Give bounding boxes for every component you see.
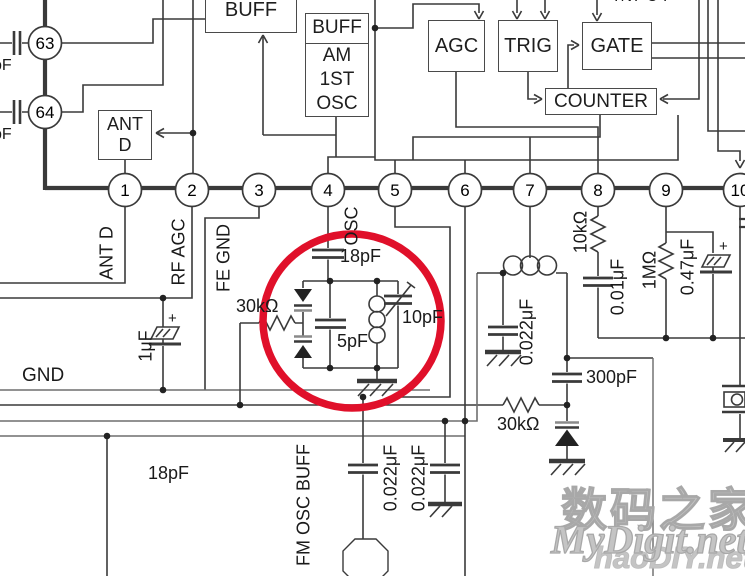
- block-counter-label: COUNTER: [554, 91, 648, 113]
- svg-text:64: 64: [36, 103, 55, 122]
- pin-9: 9: [650, 174, 683, 207]
- osc-cap-value: 18pF: [340, 246, 381, 267]
- pin8-cap-value: 0.01μF: [608, 259, 629, 315]
- block-counter: COUNTER: [545, 88, 657, 115]
- svg-text:2: 2: [187, 181, 196, 200]
- block-trig-label: TRIG: [504, 35, 552, 58]
- block-gate-label: GATE: [591, 35, 644, 58]
- pin-4: 4: [312, 174, 345, 207]
- pin9-res-value: 1MΩ: [640, 251, 661, 289]
- block-ant-label: ANT: [107, 114, 143, 135]
- pin-3: 3: [243, 174, 276, 207]
- block-osc-label: OSC: [316, 92, 357, 116]
- cap-1uf-value: 1μF: [136, 330, 157, 361]
- block-am-osc-buff-label: BUFF: [306, 14, 368, 44]
- pin-7: 7: [514, 174, 547, 207]
- pin9-cap-value: 0.47μF: [678, 239, 699, 295]
- input-label-clipped: INPUT: [614, 0, 672, 6]
- block-am-label: AM: [323, 44, 352, 68]
- svg-text:10: 10: [731, 181, 745, 200]
- tank-res-value: 30kΩ: [236, 296, 278, 317]
- pin1-label: ANT D: [97, 226, 118, 280]
- pin-6: 6: [449, 174, 482, 207]
- pin7-cap-value: 0.022μF: [517, 299, 538, 365]
- svg-text:4: 4: [323, 181, 332, 200]
- block-gate: GATE: [582, 22, 652, 70]
- svg-text:7: 7: [525, 181, 534, 200]
- cap-1uf-plus: +: [168, 310, 177, 327]
- trimmer-cap-value: 10pF: [402, 307, 443, 328]
- block-buff-top-label: BUFF: [225, 0, 277, 22]
- pin-1: 1: [109, 174, 142, 207]
- block-buff-top: BUFF: [205, 0, 297, 33]
- svg-text:9: 9: [661, 181, 670, 200]
- pin9-cap-plus: +: [719, 238, 728, 255]
- pin2-label: RF AGC: [169, 218, 190, 285]
- pin-8: 8: [582, 174, 615, 207]
- pin4-label: OSC: [342, 206, 363, 245]
- cap64-value: pF: [0, 126, 12, 144]
- gnd-label: GND: [22, 365, 64, 387]
- block-trig: TRIG: [498, 20, 558, 72]
- watermark-mydigit-text: MyDigit.net: [551, 516, 745, 563]
- block-ant-d: ANT D: [98, 110, 152, 160]
- block-agc: AGC: [428, 20, 485, 72]
- block-am-1st-osc: BUFF AM 1ST OSC: [305, 13, 369, 117]
- pin3-label: FE GND: [214, 224, 235, 292]
- res-30k-bottom-value: 30kΩ: [497, 414, 539, 435]
- svg-text:6: 6: [460, 181, 469, 200]
- pin-5: 5: [379, 174, 412, 207]
- svg-text:1: 1: [120, 181, 129, 200]
- tank-cap-value: 5pF: [337, 331, 368, 352]
- block-d-label: D: [119, 135, 132, 156]
- fm-osc-buff-label: FM OSC BUFF: [294, 444, 315, 566]
- pin-64: 64: [29, 96, 62, 129]
- pin-10: 10: [724, 174, 745, 207]
- pin8-res-value: 10kΩ: [571, 211, 592, 253]
- buff-cap1-value: 0.022μF: [381, 445, 402, 511]
- pin-63: 63: [29, 27, 62, 60]
- cap-18pf-bottom-value: 18pF: [148, 463, 189, 484]
- svg-text:5: 5: [390, 181, 399, 200]
- schematic-page: 63 64 1 2 3 4 5 6 7 8 9 10 BUFF BUFF AM …: [0, 0, 745, 576]
- svg-text:8: 8: [593, 181, 602, 200]
- buff-cap2-value: 0.022μF: [409, 445, 430, 511]
- svg-text:3: 3: [254, 181, 263, 200]
- block-1st-label: 1ST: [320, 68, 355, 92]
- cap-300pf-value: 300pF: [586, 367, 637, 388]
- cap63-value: pF: [0, 57, 12, 75]
- svg-text:63: 63: [36, 34, 55, 53]
- block-agc-label: AGC: [435, 35, 478, 58]
- pin-2: 2: [176, 174, 209, 207]
